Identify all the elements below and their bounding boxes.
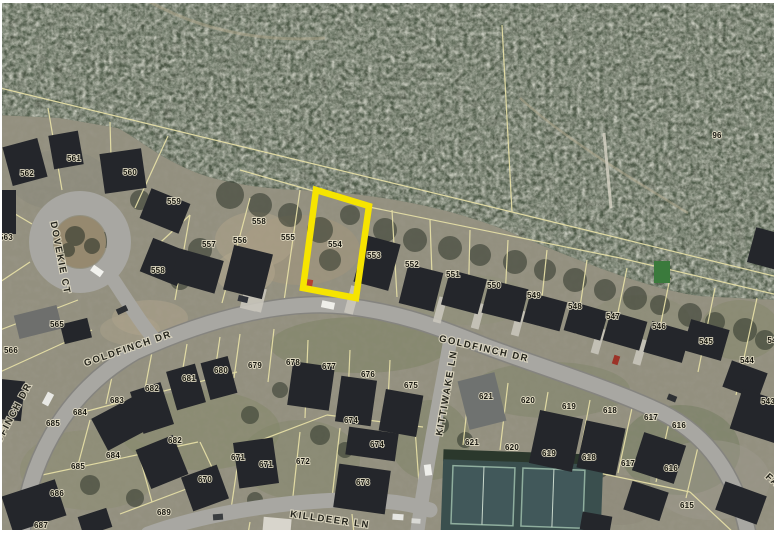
- parcel-label-684: 684: [73, 408, 87, 417]
- parcel-label-687: 687: [34, 521, 48, 530]
- parcel-label-561: 561: [67, 154, 81, 163]
- parcel-label-617: 617: [621, 459, 635, 468]
- parcel-label-689: 689: [157, 508, 171, 517]
- parcel-label-682: 682: [145, 384, 159, 393]
- parcel-label-620: 620: [521, 396, 535, 405]
- parcel-label-682: 682: [168, 436, 182, 445]
- parcel-label-676: 676: [361, 370, 375, 379]
- parcel-label-684: 684: [106, 451, 120, 460]
- parcel-label-617: 617: [644, 413, 658, 422]
- parcel-label-565: 565: [50, 320, 64, 329]
- parcel-label-621: 621: [479, 392, 493, 401]
- parcel-label-615: 615: [680, 501, 694, 510]
- parcel-label-560: 560: [123, 168, 137, 177]
- parcel-label-558: 558: [252, 217, 266, 226]
- parcel-label-545: 545: [699, 337, 713, 346]
- parcel-label-672: 672: [296, 457, 310, 466]
- parcel-label-686: 686: [50, 489, 64, 498]
- frame-border-bottom: [0, 530, 778, 534]
- parcel-label-685: 685: [46, 419, 60, 428]
- parcel-label-681: 681: [182, 374, 196, 383]
- parcel-label-553: 553: [367, 251, 381, 260]
- frame-border-left: [0, 0, 2, 534]
- parcel-label-677: 677: [322, 362, 336, 371]
- parcel-label-544: 544: [740, 356, 754, 365]
- parcel-label-683: 683: [110, 396, 124, 405]
- parcel-label-674: 674: [344, 416, 358, 425]
- parcel-label-616: 616: [672, 421, 686, 430]
- parcel-label-547: 547: [606, 312, 620, 321]
- frame-border-right: [774, 0, 778, 534]
- aerial-map-image[interactable]: GOLDFINCH DRGOLDFINCH DRGOLDFINCH DRDOVE…: [0, 0, 778, 534]
- parcel-label-549: 549: [527, 291, 541, 300]
- parcel-label-671: 671: [231, 453, 245, 462]
- parcel-label-618: 618: [603, 406, 617, 415]
- parcel-label-96: 96: [712, 131, 722, 140]
- parcel-label-619: 619: [542, 449, 556, 458]
- parcel-label-685: 685: [71, 462, 85, 471]
- parcel-label-620: 620: [505, 443, 519, 452]
- parcel-label-556: 556: [233, 236, 247, 245]
- parcel-label-557: 557: [202, 240, 216, 249]
- frame-border-top: [0, 0, 778, 3]
- parcel-label-670: 670: [198, 475, 212, 484]
- parcel-label-621: 621: [465, 438, 479, 447]
- parcel-label-554: 554: [328, 240, 342, 249]
- parcel-label-674: 674: [370, 440, 384, 449]
- parcel-label-558: 558: [151, 266, 165, 275]
- parcel-label-552: 552: [405, 260, 419, 269]
- parcel-label-618: 618: [582, 453, 596, 462]
- parcel-label-548: 548: [568, 302, 582, 311]
- parcel-label-679: 679: [248, 361, 262, 370]
- parcel-label-675: 675: [404, 381, 418, 390]
- parcel-label-559: 559: [167, 197, 181, 206]
- green-shed: [654, 261, 670, 283]
- parcel-label-671: 671: [259, 460, 273, 469]
- parcel-label-678: 678: [286, 358, 300, 367]
- parcel-label-616: 616: [664, 464, 678, 473]
- map-canvas[interactable]: GOLDFINCH DRGOLDFINCH DRGOLDFINCH DRDOVE…: [0, 0, 778, 534]
- parcel-label-546: 546: [652, 322, 666, 331]
- parcel-label-551: 551: [446, 270, 460, 279]
- parcel-label-680: 680: [214, 366, 228, 375]
- parcel-label-673: 673: [356, 478, 370, 487]
- parcel-label-566: 566: [4, 346, 18, 355]
- parcel-label-562: 562: [20, 169, 34, 178]
- parcel-label-619: 619: [562, 402, 576, 411]
- parcel-label-550: 550: [487, 281, 501, 290]
- parcel-label-555: 555: [281, 233, 295, 242]
